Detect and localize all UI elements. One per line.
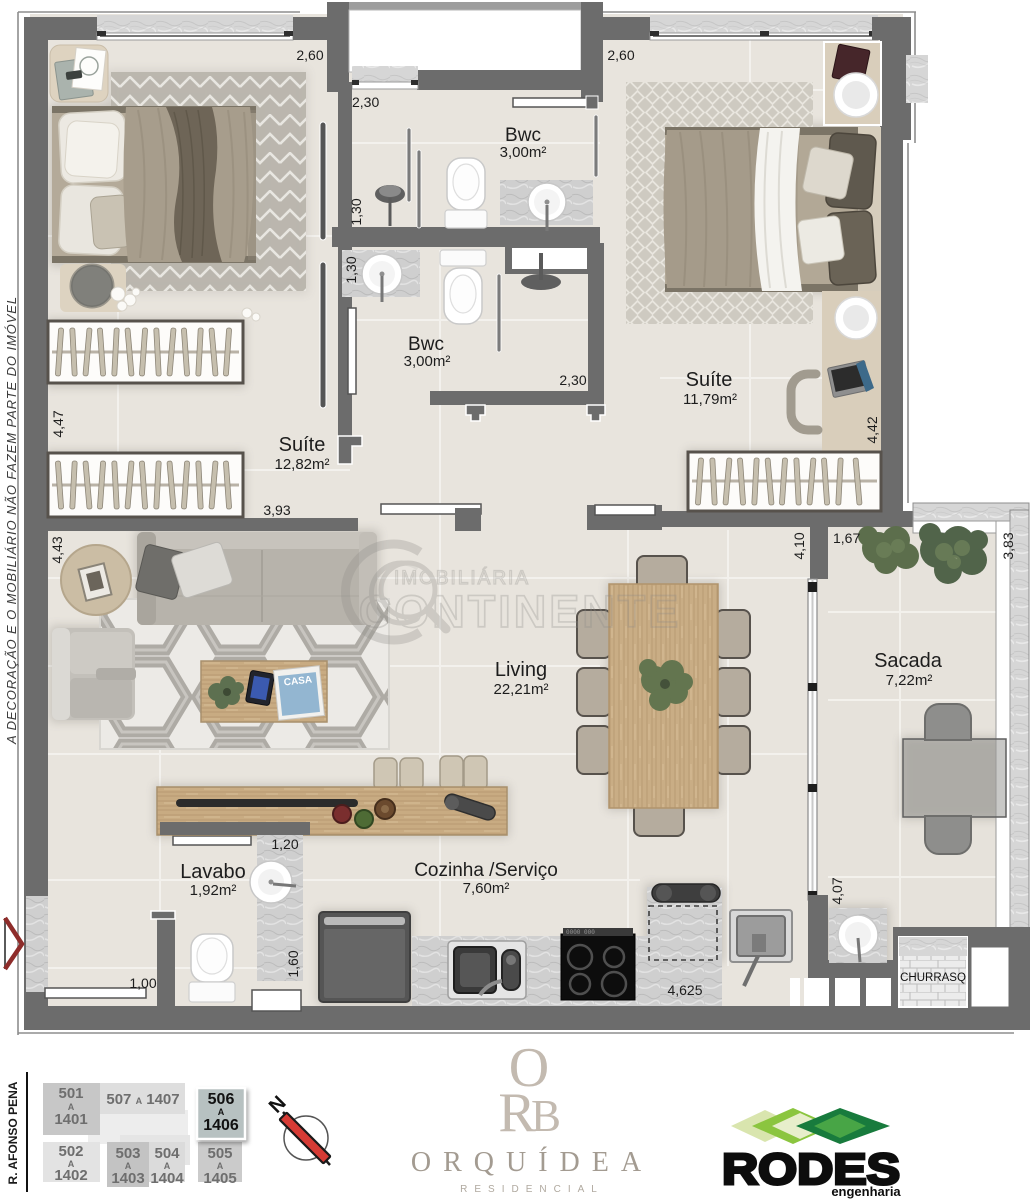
svg-text:CHURRASQ: CHURRASQ xyxy=(900,972,966,984)
svg-text:1403: 1403 xyxy=(111,1170,144,1187)
svg-text:1,30: 1,30 xyxy=(348,198,364,225)
svg-text:1,30: 1,30 xyxy=(343,256,359,283)
svg-text:3,00m²: 3,00m² xyxy=(404,353,451,370)
svg-text:4,07: 4,07 xyxy=(829,877,845,904)
svg-text:7,60m²: 7,60m² xyxy=(463,880,510,897)
svg-text:RESIDENCIAL: RESIDENCIAL xyxy=(460,1184,604,1195)
svg-text:4,42: 4,42 xyxy=(864,416,880,443)
svg-text:4,625: 4,625 xyxy=(667,982,702,998)
svg-text:2,30: 2,30 xyxy=(352,94,379,110)
svg-text:2,30: 2,30 xyxy=(559,372,586,388)
svg-text:Suíte: Suíte xyxy=(279,434,326,456)
svg-text:7,22m²: 7,22m² xyxy=(886,672,933,689)
svg-text:A DECORAÇÃO E O MOBILIÁRIO NÃO: A DECORAÇÃO E O MOBILIÁRIO NÃO FAZEM PAR… xyxy=(4,296,19,745)
svg-text:12,82m²: 12,82m² xyxy=(274,456,329,473)
svg-text:1,20: 1,20 xyxy=(271,836,298,852)
svg-text:2,60: 2,60 xyxy=(607,47,634,63)
svg-text:504: 504 xyxy=(154,1145,180,1162)
svg-text:506: 506 xyxy=(208,1091,235,1108)
svg-text:Bwc: Bwc xyxy=(505,125,541,146)
svg-text:11,79m²: 11,79m² xyxy=(683,391,737,408)
svg-text:0000 000: 0000 000 xyxy=(566,929,595,936)
svg-text:4,47: 4,47 xyxy=(50,410,66,437)
svg-text:Sacada: Sacada xyxy=(874,650,943,672)
svg-text:1,92m²: 1,92m² xyxy=(190,882,237,899)
svg-text:Bwc: Bwc xyxy=(408,334,444,355)
svg-text:1,67: 1,67 xyxy=(833,530,860,546)
svg-text:3,00m²: 3,00m² xyxy=(500,144,547,161)
svg-text:1,60: 1,60 xyxy=(285,950,301,977)
svg-text:R. AFONSO PENA: R. AFONSO PENA xyxy=(6,1081,20,1184)
svg-text:Living: Living xyxy=(495,659,547,681)
svg-text:1405: 1405 xyxy=(203,1170,236,1187)
svg-text:B: B xyxy=(531,1091,561,1141)
svg-text:503: 503 xyxy=(115,1145,140,1162)
svg-text:502: 502 xyxy=(58,1143,83,1160)
svg-text:CONTINENTE: CONTINENTE xyxy=(359,586,682,637)
svg-text:Cozinha /Serviço: Cozinha /Serviço xyxy=(414,860,558,881)
svg-text:A: A xyxy=(218,1107,225,1117)
svg-text:ORQUÍDEA: ORQUÍDEA xyxy=(411,1147,653,1178)
svg-text:Suíte: Suíte xyxy=(686,369,733,391)
svg-text:1404: 1404 xyxy=(150,1170,184,1187)
svg-text:4,10: 4,10 xyxy=(791,532,807,559)
svg-text:1406: 1406 xyxy=(203,1117,239,1134)
svg-text:1401: 1401 xyxy=(54,1111,87,1128)
svg-text:501: 501 xyxy=(58,1085,83,1102)
svg-text:1,00: 1,00 xyxy=(129,975,156,991)
svg-text:3,93: 3,93 xyxy=(263,502,290,518)
svg-text:Lavabo: Lavabo xyxy=(180,861,246,883)
svg-text:3,83: 3,83 xyxy=(1000,532,1016,559)
svg-text:22,21m²: 22,21m² xyxy=(493,681,548,698)
svg-text:2,60: 2,60 xyxy=(296,47,323,63)
svg-text:507 A 1407: 507 A 1407 xyxy=(106,1091,179,1108)
svg-text:505: 505 xyxy=(207,1145,232,1162)
svg-text:1402: 1402 xyxy=(54,1167,87,1184)
svg-text:engenharia: engenharia xyxy=(831,1184,901,1199)
svg-text:4,43: 4,43 xyxy=(49,536,65,563)
